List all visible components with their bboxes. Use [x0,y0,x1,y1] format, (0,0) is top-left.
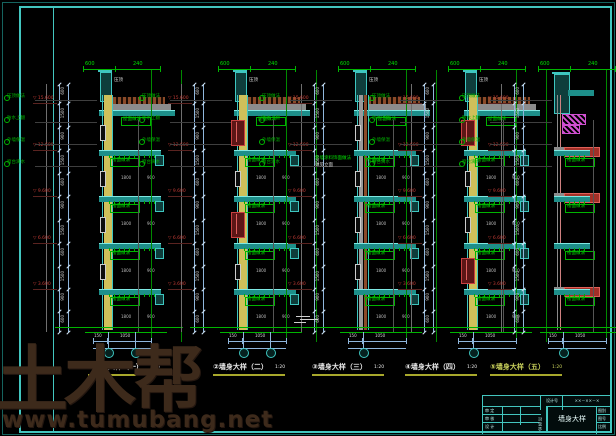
annotation-bullet [139,139,145,145]
dim-value: 600 [61,315,65,323]
top-dim-tick [370,66,371,72]
mid-dim: 1800 [121,222,131,226]
annotation-leader [170,144,232,145]
level-marker: ▽ 3.600 [488,283,506,288]
top-dim-text: 600 [220,62,230,67]
annotation-bullet [459,161,465,167]
dim-value: 1500 [516,225,520,235]
level-line [33,196,57,197]
dim-value: 600 [61,87,65,95]
facade-note2: 详见立面 [315,164,333,169]
section-title-underline [312,374,384,376]
level-line [168,103,192,104]
level-marker: ▽ 9.600 [168,190,186,195]
dim-value: 600 [426,248,430,256]
mid-dim: 1800 [256,269,266,273]
top-dim-tick [115,66,116,72]
level-line [398,243,422,244]
top-dim-text: 240 [268,62,278,67]
top-dim-tick [295,66,296,72]
level-marker: ▽ 3.600 [398,283,416,288]
dim-value: 900 [426,293,430,301]
ground-dim-tick [606,338,607,344]
ground-dim-tick [406,338,407,344]
dim-value: 1500 [61,108,65,118]
ground-line [310,327,438,328]
section-title-underline [213,374,285,376]
dim-value: 1500 [516,108,520,118]
top-dim-text: 600 [85,62,95,67]
window-marker [355,217,361,233]
grid-line-green [606,70,607,342]
annotation-bullet [259,95,265,101]
dim-value: 1500 [316,271,320,281]
level-line [488,289,512,290]
annotation-bullet [4,117,10,123]
level-line [288,150,312,151]
sketch-line [294,322,306,323]
parapet-cap [98,70,112,72]
level-marker: ▽ 3.600 [168,283,186,288]
window-marker [465,171,471,187]
annotation-leader [170,100,232,101]
ground-dim-text: 150 [549,334,557,338]
window-marker [235,264,241,280]
parapet-label: 压顶 [114,79,123,84]
annotation-leader [35,100,97,101]
annotation-leader [490,144,552,145]
axis-bubble [239,348,249,358]
parapet-cap [463,70,477,72]
ground-line [190,327,318,328]
dim-tick [57,330,61,334]
top-dim-line [338,69,415,70]
level-marker: ▽ 9.600 [33,190,51,195]
parapet-cap [353,70,367,72]
top-dim-tick [480,66,481,72]
mid-dim: 1800 [486,222,496,226]
ground-dim-tick [228,338,229,344]
top-dim-tick [218,66,219,72]
ground-dim2 [228,348,286,349]
top-dim-line [538,69,615,70]
section-title-scale: 1:20 [467,366,477,371]
dim-value: 600 [196,178,200,186]
slab-annotation-box [110,297,140,306]
mid-dim: 1800 [486,315,496,319]
insulation-hatch [562,114,586,125]
annotation-leader [290,144,352,145]
ground-dim2 [458,348,516,349]
parapet-label: 压顶 [249,79,258,84]
section-title-underline [490,374,562,376]
dim-value: 1500 [61,225,65,235]
annotation-bullet [4,161,10,167]
ground-dim-text: 150 [459,334,467,338]
slab-annotation-box [565,251,595,260]
grid-line-green [546,70,547,342]
dim-value: 600 [516,178,520,186]
dim-tick [66,330,70,334]
section-title: ⑤墙身大样（五） [490,364,545,371]
dim-value: 600 [61,178,65,186]
slab-annotation-box [365,251,395,260]
top-dim-text: 240 [588,62,598,67]
title-block-right-3: 比例 [596,422,612,434]
level-marker: ▽ 6.600 [488,237,506,242]
grid-line-green [436,70,437,342]
dim-value: 600 [196,315,200,323]
window-marker [355,171,361,187]
dim-value: 600 [516,315,520,323]
annotation-bullet [259,161,265,167]
level-marker: ▽ 6.600 [398,237,416,242]
level-line [168,196,192,197]
dim-value: 900 [196,293,200,301]
slab-edge-block [290,294,299,305]
mid-dim: 1800 [376,269,386,273]
annotation-bullet [139,117,145,123]
mid-dim: 1800 [121,176,131,180]
dim-value: 900 [516,132,520,140]
slab-annotation-box [110,251,140,260]
window-marker [465,217,471,233]
grid-line-white [273,120,274,332]
level-line [398,289,422,290]
slab-edge-block [290,248,299,259]
annotation-bullet [369,139,375,145]
ground-dim [348,341,406,342]
slab-annotation-box [110,204,140,213]
dim-value: 600 [426,87,430,95]
ground-dim-text: 150 [349,334,357,338]
slab-annotation-box [245,251,275,260]
mid-dim: 1800 [256,222,266,226]
mid-dim: 1800 [256,315,266,319]
annotation-bullet [4,95,10,101]
annotation-leader [290,122,352,123]
dim-tick [431,330,435,334]
dim-value: 600 [426,315,430,323]
dim-value: 1500 [316,225,320,235]
parapet-cap [233,70,247,72]
dim-value: 600 [426,178,430,186]
grid-line-green [151,70,152,342]
slab-edge-block [155,294,164,305]
slab-edge-block [155,201,164,212]
section-title: ③墙身大样（三） [312,364,367,371]
slab-edge-block [520,155,529,166]
slab-annotation-box [365,297,395,306]
ground-dim-text: 1050 [575,334,585,338]
level-line [288,196,312,197]
grid-line-white [393,120,394,332]
annotation-bullet [459,139,465,145]
section-title-scale: 1:20 [552,366,562,371]
dim-value: 600 [61,248,65,256]
dim-tick [201,330,205,334]
insulation-hatch [562,125,580,134]
grid-line-white [503,120,504,332]
dim-value: 900 [316,201,320,209]
dim-value: 900 [61,132,65,140]
axis-bubble [559,348,569,358]
mid-dim: 1800 [486,176,496,180]
dim-value: 600 [316,248,320,256]
dim-value: 900 [61,293,65,301]
slab-annotation-box [245,297,275,306]
axis-bubble [469,348,479,358]
annotation-leader [400,122,462,123]
cad-drawing-canvas: 6002406001500900150060090015006001500900… [0,0,616,436]
grid-line-white [593,120,594,332]
ground-dim-tick [286,338,287,344]
top-dim-tick [338,66,339,72]
level-line [488,196,512,197]
annotation-leader [35,122,97,123]
annotation-leader [35,166,97,167]
level-line [168,150,192,151]
window-marker [100,264,106,280]
ground-dim-tick [548,338,549,344]
section-title-scale: 1:20 [275,366,285,371]
slab-edge-block [520,201,529,212]
annotation-leader [170,166,232,167]
annotation-bullet [459,117,465,123]
window-marker [100,171,106,187]
ground-dim-text: 1050 [485,334,495,338]
coping-cap [552,72,570,74]
top-dim-tick [250,66,251,72]
top-dim-tick [448,66,449,72]
top-dim-tick [160,66,161,72]
annotation-bullet [459,95,465,101]
dim-value: 1500 [61,271,65,281]
annotation-leader [35,144,97,145]
section-title: ②墙身大样（二） [213,364,268,371]
slab-annotation-box [565,204,595,213]
annotation-bullet [139,95,145,101]
dim-value: 600 [196,248,200,256]
dim-value: 600 [516,87,520,95]
dim-value: 1500 [516,155,520,165]
parapet-label: 压顶 [479,79,488,84]
sketch-line [300,319,318,320]
dim-value: 900 [426,132,430,140]
section-title-underline [405,374,477,376]
window-frame [231,120,245,146]
annotation-bullet [4,139,10,145]
dim-value: 1500 [516,271,520,281]
level-line [33,150,57,151]
ground-dim-tick [516,338,517,344]
dim-tick [422,330,426,334]
dim-value: 600 [196,87,200,95]
window-marker [355,125,361,141]
level-marker: ▽ 6.600 [168,237,186,242]
title-block-drawing-name: 墙身大样 [546,406,597,432]
level-marker: ▽ 3.600 [33,283,51,288]
window-marker [100,125,106,141]
bubble-stem [473,332,474,348]
top-dim-tick [570,66,571,72]
grid-line-green [286,70,287,342]
dim-tick [192,330,196,334]
level-line [488,150,512,151]
slab-annotation-box [565,158,595,167]
level-line [168,243,192,244]
bubble-stem [363,332,364,348]
dim-value: 900 [426,201,430,209]
top-dim-line [83,69,160,70]
watermark-url: www.tumubang.net [2,409,273,432]
window-mullion [466,260,467,280]
top-dim-tick [415,66,416,72]
slab-annotation-box [565,297,595,306]
annotation-leader [400,144,462,145]
mid-dim: 1800 [376,176,386,180]
bubble-stem [270,332,271,348]
dim-value: 1500 [196,271,200,281]
mid-dim: 1800 [121,315,131,319]
ground-dim-text: 150 [229,334,237,338]
dim-value: 1500 [196,108,200,118]
level-line [488,243,512,244]
annotation-bullet [139,161,145,167]
dim-value: 1500 [426,225,430,235]
top-dim-text: 240 [133,62,143,67]
annotation-leader [490,100,552,101]
level-line [33,243,57,244]
ground-dim2 [348,348,406,349]
level-line [33,289,57,290]
coping-arm [568,90,594,96]
slab-annotation-box [245,204,275,213]
dim-value: 600 [316,87,320,95]
mid-dim: 1800 [376,222,386,226]
dim-value: 1500 [196,225,200,235]
level-line [168,289,192,290]
level-marker: ▽ 9.600 [398,190,416,195]
dim-value: 900 [61,201,65,209]
dim-value: 600 [516,248,520,256]
dim-tick [321,330,325,334]
level-line [398,103,422,104]
top-dim-tick [83,66,84,72]
parapet-label: 压顶 [369,79,378,84]
level-marker: ▽ 3.600 [288,283,306,288]
window-marker [235,171,241,187]
window-frame [231,212,245,238]
slab-annotation-box [365,204,395,213]
window-marker [100,217,106,233]
mid-dim: 1800 [376,315,386,319]
dim-value: 900 [316,293,320,301]
level-marker: ▽ 9.600 [288,190,306,195]
mid-dim: 1800 [486,269,496,273]
slab-edge-block [520,248,529,259]
dim-value: 900 [516,293,520,301]
facade-note: 外墙涂料饰面做法 [315,157,351,162]
slab-edge-block [520,294,529,305]
annotation-leader [170,122,232,123]
sketch-line [296,316,310,317]
dim-value: 600 [316,178,320,186]
ground-dim-text: 1050 [255,334,265,338]
annotation-bullet [259,117,265,123]
level-line [288,289,312,290]
dim-value: 1500 [426,108,430,118]
grid-line-green [406,70,407,342]
dim-value: 1500 [196,155,200,165]
annotation-leader [290,100,352,101]
level-marker: ▽ 6.600 [33,237,51,242]
ground-dim [458,341,516,342]
annotation-bullet [369,161,375,167]
ground-dim-tick [348,338,349,344]
dim-value: 900 [516,201,520,209]
level-line [398,196,422,197]
window-frame [461,258,475,284]
section-title-scale: 1:20 [374,366,384,371]
level-line [33,103,57,104]
section-title: ④墙身大样（四） [405,364,460,371]
annotation-leader [400,100,462,101]
dim-value: 1500 [61,155,65,165]
top-dim-text: 600 [340,62,350,67]
ground-line [510,327,616,328]
level-line [398,150,422,151]
axis-bubble [266,348,276,358]
bubble-stem [563,332,564,348]
bubble-stem [243,332,244,348]
annotation-leader [490,166,552,167]
ground-dim-text: 1050 [375,334,385,338]
top-dim-line [218,69,295,70]
dim-value: 1500 [426,155,430,165]
slab-edge-block [290,155,299,166]
level-line [488,103,512,104]
dim-value: 900 [196,132,200,140]
watermark-logo: 土木帮 [0,344,200,416]
dim-value: 900 [316,132,320,140]
grid-line-white [138,120,139,332]
mid-dim: 1800 [121,269,131,273]
title-block-blank [502,422,539,432]
top-dim-line [448,69,525,70]
ground-line [55,327,183,328]
level-line [288,103,312,104]
level-marker: ▽ 9.600 [488,190,506,195]
slab-edge-block [290,201,299,212]
top-dim-text: 600 [450,62,460,67]
window-mullion [236,122,237,142]
window-marker [355,264,361,280]
ground-dim [228,341,286,342]
dim-value: 1500 [426,271,430,281]
mid-dim: 1800 [256,176,266,180]
axis-bubble [359,348,369,358]
annotation-leader [400,166,462,167]
annotation-leader [490,122,552,123]
level-marker: ▽ 6.600 [288,237,306,242]
level-line [288,243,312,244]
ground-dim2 [548,348,606,349]
top-dim-tick [525,66,526,72]
slab-edge-block [155,248,164,259]
top-dim-text: 600 [540,62,550,67]
annotation-bullet [369,95,375,101]
